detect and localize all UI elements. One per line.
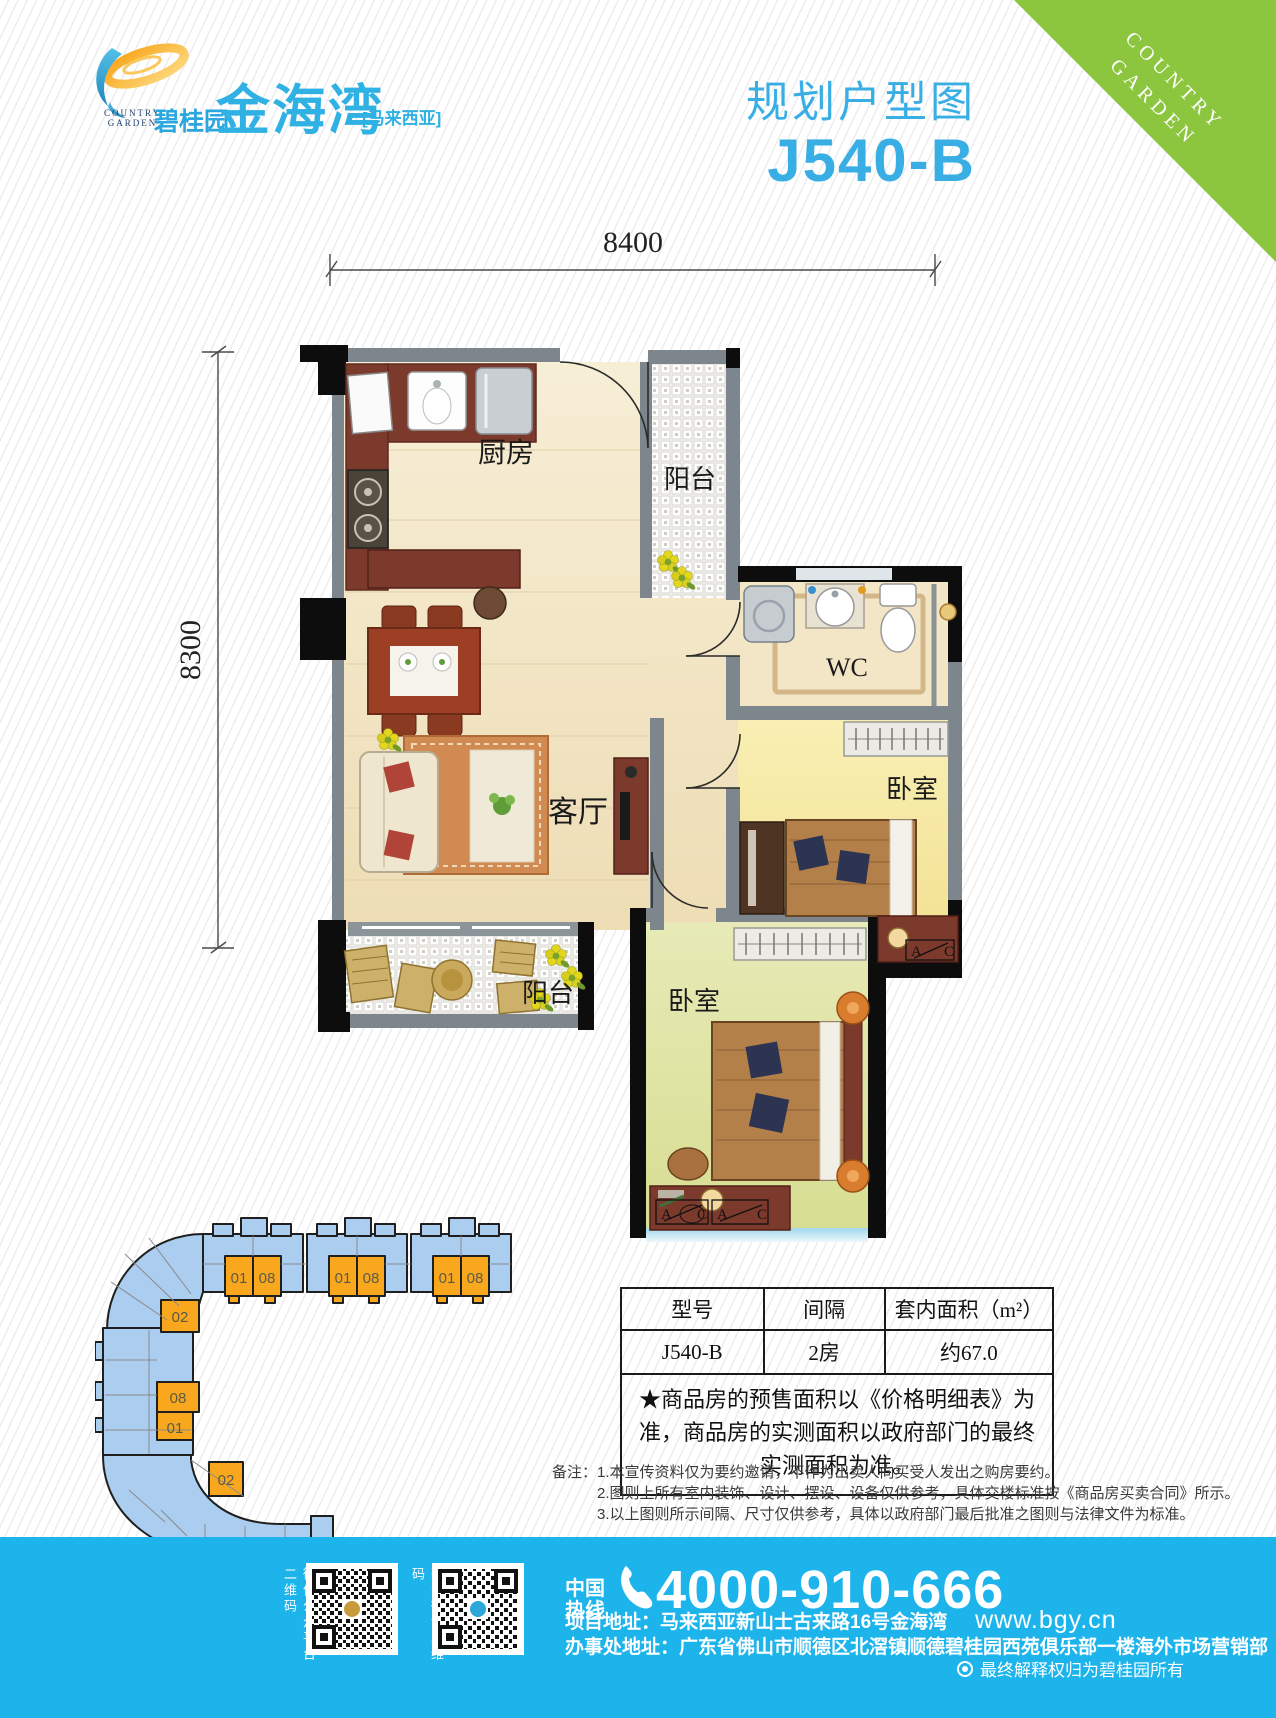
wc-label: WC: [826, 653, 868, 682]
spec-area: 约67.0: [885, 1330, 1053, 1374]
website-link[interactable]: www.bgy.cn: [975, 1606, 1117, 1635]
kitchen-label: 厨房: [478, 437, 534, 469]
spec-model: J540-B: [621, 1330, 764, 1374]
remarks-block: 备注： 1.本宣传资料仅为要约邀请，不作为出卖人向买受人发出之购房要约。 2.图…: [552, 1462, 1240, 1525]
ribbon-label: COUNTRY GARDEN: [1097, 25, 1232, 160]
spec-col-area: 套内面积（m²）: [885, 1288, 1053, 1330]
balcony-top-label: 阳台: [664, 465, 716, 494]
footer-bar: 微信公众平台二维码 新浪微博二维码: [0, 1537, 1276, 1718]
balcony-bottom-label: 阳台: [522, 979, 574, 1008]
disclaimer-text: 最终解释权归为碧桂园所有: [980, 1656, 1184, 1681]
svg-text:08: 08: [259, 1270, 276, 1287]
disclaimer-line: 最终解释权归为碧桂园所有: [957, 1656, 1184, 1681]
spec-layout: 2房: [764, 1330, 885, 1374]
svg-text:08: 08: [363, 1270, 380, 1287]
project-name: 金海湾: [216, 66, 384, 145]
dimension-width-label: 8400: [603, 226, 663, 259]
spec-col-model: 型号: [621, 1288, 764, 1330]
svg-text:A: A: [911, 944, 922, 960]
svg-text:08: 08: [467, 1270, 484, 1287]
siteplan-unit-labels: 01 08 01 08 01 08 02 08 01 02: [167, 1270, 484, 1489]
qr-code-weibo: [432, 1563, 524, 1655]
remark-line-3: 3.以上图则所示间隔、尺寸仅供参考，具体以政府部门最后批准之图则与法律文件为标准…: [597, 1504, 1240, 1525]
svg-text:02: 02: [172, 1309, 189, 1326]
bedroom-bottom-label: 卧室: [668, 987, 720, 1016]
svg-text:A: A: [717, 1207, 728, 1223]
remarks-label: 备注：: [552, 1462, 597, 1525]
svg-text:C: C: [757, 1207, 767, 1223]
spec-col-layout: 间隔: [764, 1288, 885, 1330]
svg-text:C: C: [944, 944, 954, 960]
svg-text:08: 08: [170, 1390, 187, 1407]
office-address: 办事处地址：广东省佛山市顺德区北滘镇顺德碧桂园西苑俱乐部一楼海外市场营销部: [565, 1632, 1268, 1659]
bullet-icon: [957, 1661, 973, 1677]
floorplan-drawing: 8400 8300: [180, 210, 1000, 1270]
remark-line-2: 2.图则上所有室内装饰、设计、摆设、设备仅供参考，具体交楼标准按《商品房买卖合同…: [597, 1483, 1240, 1504]
living-label: 客厅: [548, 796, 608, 829]
siteplan-drawing: 01 08 01 08 01 08 02 08 01 02: [95, 1190, 525, 1570]
poster-page: COUNTRY GARDEN 碧桂园 金海湾 [马来西亚] 规划户型图 J540…: [0, 0, 1276, 1718]
svg-text:01: 01: [439, 1270, 456, 1287]
svg-text:01: 01: [231, 1270, 248, 1287]
project-address: 项目地址：马来西亚新山士古来路16号金海湾: [565, 1607, 947, 1634]
page-title: 规划户型图 J540-B: [746, 68, 976, 192]
svg-text:C: C: [697, 1207, 707, 1223]
unit-code: J540-B: [746, 130, 976, 192]
svg-text:01: 01: [167, 1420, 184, 1437]
svg-text:02: 02: [218, 1472, 235, 1489]
qr-code-wechat: [306, 1563, 398, 1655]
logo-country-garden-text: COUNTRY GARDEN: [104, 108, 161, 128]
svg-text:A: A: [661, 1207, 672, 1223]
region-tag: [马来西亚]: [362, 104, 441, 129]
page-title-text: 规划户型图: [746, 68, 976, 130]
phone-icon: [617, 1565, 653, 1611]
corner-ribbon: COUNTRY GARDEN: [1014, 0, 1276, 262]
remark-line-1: 1.本宣传资料仅为要约邀请，不作为出卖人向买受人发出之购房要约。: [597, 1462, 1240, 1483]
bedroom-right-label: 卧室: [886, 775, 938, 804]
svg-text:01: 01: [335, 1270, 352, 1287]
dimension-height-label: 8300: [180, 620, 207, 680]
